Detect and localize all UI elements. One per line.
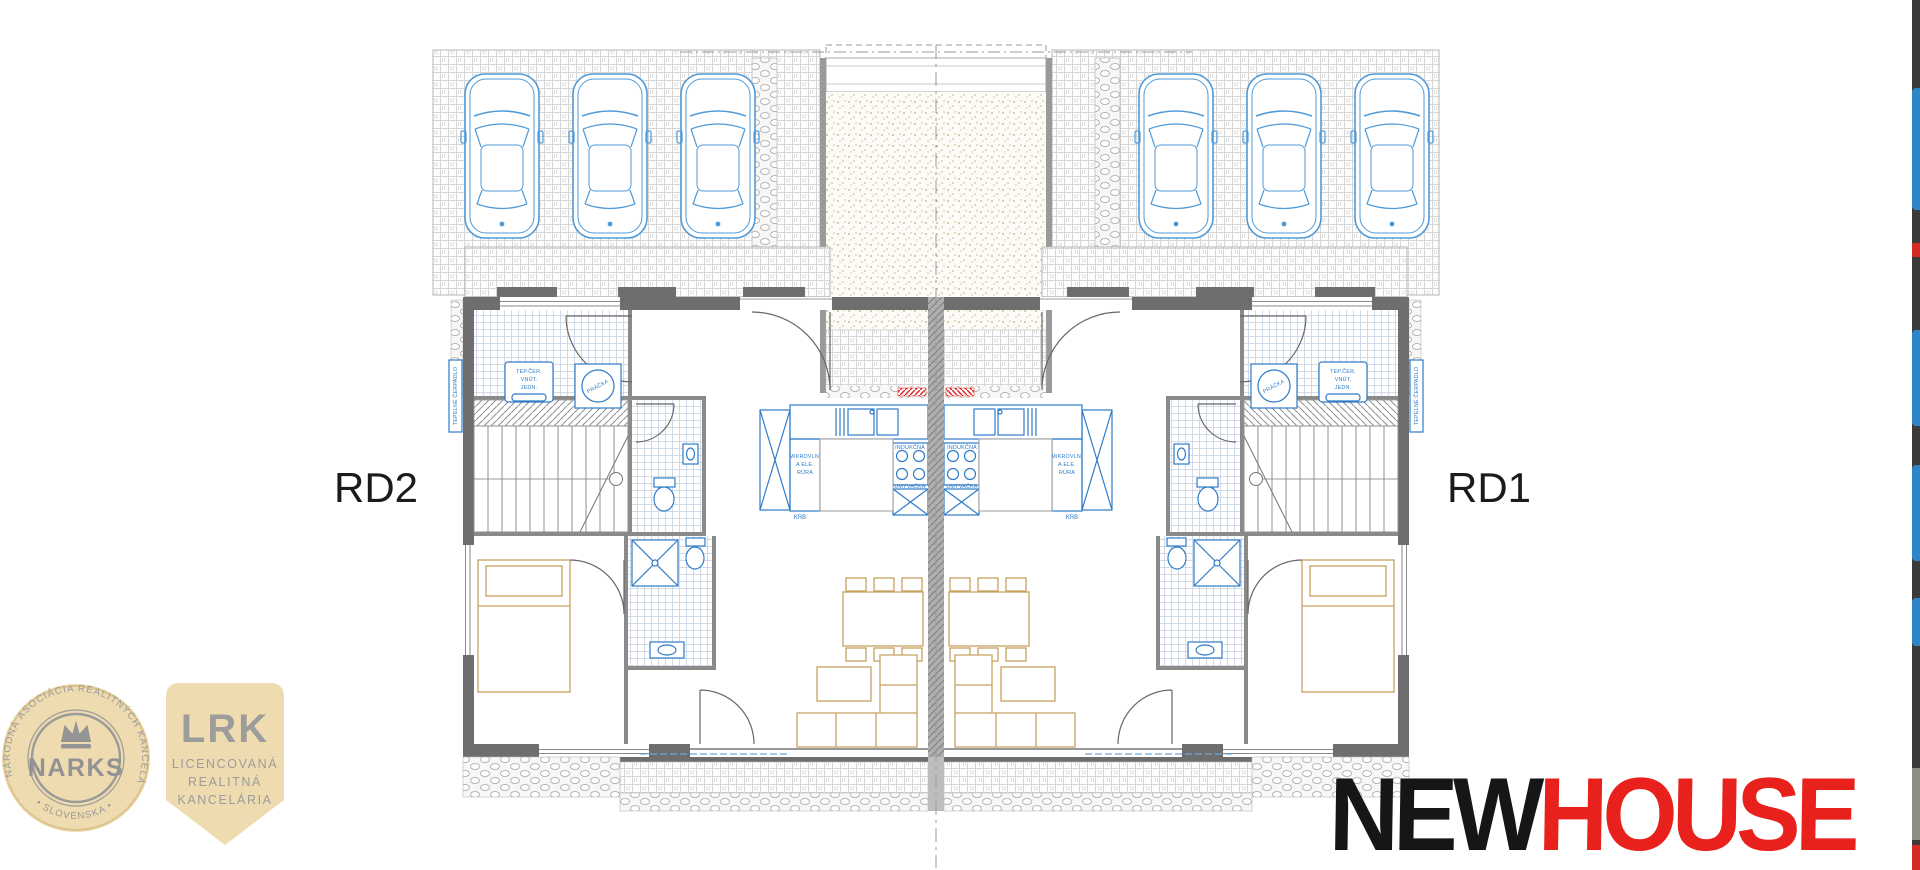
car-icon xyxy=(677,74,759,238)
fireplace-label: KRB xyxy=(794,515,806,521)
svg-text:TEPELNÉ ČERPADLO: TEPELNÉ ČERPADLO xyxy=(1413,367,1420,426)
svg-text:TEP.ČER.: TEP.ČER. xyxy=(1330,368,1356,375)
car-icon xyxy=(569,74,651,238)
narks-ring-text: NÁRODNÁ ASOCIÁCIA REALITNÝCH KANCELÁRIÍ xyxy=(0,0,150,786)
car-icon xyxy=(1135,74,1217,238)
sliver-car-fragment xyxy=(1912,330,1920,426)
floor-plan-drawing: TEP.ČER. VNÚT. JEDN. PRÁČKA TEPELNÉ ČERP… xyxy=(0,0,1920,870)
unit-label-rd1: RD1 xyxy=(1447,464,1531,511)
svg-text:KANCELÁRIA: KANCELÁRIA xyxy=(177,792,272,807)
next-image-sliver xyxy=(1912,0,1920,870)
newhouse-logo-house: HOUSE xyxy=(1537,757,1855,870)
real-estate-floorplan-slide: TEP.ČER. VNÚT. JEDN. PRÁČKA TEPELNÉ ČERP… xyxy=(0,0,1920,870)
unit-label-rd2: RD2 xyxy=(334,464,418,511)
svg-text:KRB: KRB xyxy=(1066,515,1078,521)
svg-text:UMÝVAČKA: UMÝVAČKA xyxy=(946,483,978,490)
narks-badge: NÁRODNÁ ASOCIÁCIA REALITNÝCH KANCELÁRIÍ … xyxy=(0,0,150,832)
svg-text:RÚRA: RÚRA xyxy=(1059,469,1075,476)
lrk-badge: LRK LICENCOVANÁ REALITNÁ KANCELÁRIA xyxy=(166,683,284,845)
sliver-car-fragment xyxy=(1912,465,1920,561)
sliver-car-fragment xyxy=(1912,88,1920,210)
car-icon xyxy=(1243,74,1325,238)
heatpump-indoor-label: TEP.ČER. xyxy=(516,368,542,375)
car-icon xyxy=(1351,74,1433,238)
svg-text:VNÚT.: VNÚT. xyxy=(1335,376,1352,383)
sliver-car-fragment xyxy=(1912,598,1920,646)
svg-text:JEDN.: JEDN. xyxy=(1335,385,1352,391)
narks-wordmark: NARKS xyxy=(28,754,124,782)
microwave-label: MIKROVLN. xyxy=(789,454,820,460)
svg-text:VNÚT.: VNÚT. xyxy=(521,376,538,383)
svg-text:A ELE.: A ELE. xyxy=(796,462,814,468)
svg-text:RÚRA: RÚRA xyxy=(797,469,813,476)
svg-text:INDUKČNÁ: INDUKČNÁ xyxy=(947,444,977,451)
svg-text:MIKROVLN.: MIKROVLN. xyxy=(1051,454,1082,460)
induction-label: INDUKČNÁ xyxy=(895,444,925,451)
newhouse-logo: NEWHOUSE xyxy=(1328,768,1855,864)
svg-text:LICENCOVANÁ: LICENCOVANÁ xyxy=(172,756,278,771)
svg-text:JEDN.: JEDN. xyxy=(521,385,538,391)
dishwasher-label: UMÝVAČKA xyxy=(894,483,926,490)
heatpump-outdoor-label: TEPELNÉ ČERPADLO xyxy=(452,367,459,426)
svg-text:A ELE.: A ELE. xyxy=(1058,462,1076,468)
svg-text:REALITNÁ: REALITNÁ xyxy=(188,774,262,789)
newhouse-logo-new: NEW xyxy=(1328,757,1539,870)
lrk-wordmark: LRK xyxy=(181,707,269,751)
svg-text:NÁRODNÁ ASOCIÁCIA REALITNÝCH K: NÁRODNÁ ASOCIÁCIA REALITNÝCH KANCELÁRIÍ xyxy=(0,0,150,786)
car-icon xyxy=(461,74,543,238)
